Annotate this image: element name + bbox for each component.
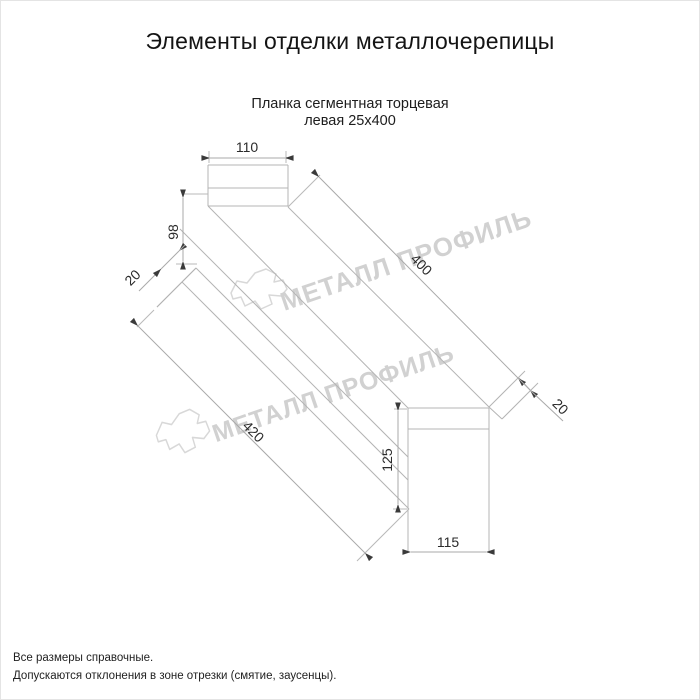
dim-bottom-width-label: 115: [437, 534, 460, 550]
extension-lines: [137, 151, 409, 561]
technical-drawing: МЕТАЛЛ ПРОФИЛЬ МЕТАЛЛ ПРОФИЛЬ: [1, 1, 699, 699]
footer-note-line2: Допускаются отклонения в зоне отрезки (с…: [13, 667, 336, 685]
dim-right-flange-label: 20: [549, 395, 571, 417]
watermark-upper: МЕТАЛЛ ПРОФИЛЬ: [231, 202, 536, 316]
dim-top-width-label: 110: [236, 139, 259, 155]
dimension-labels: 110 98 20 400 420 20 125 115: [121, 139, 572, 550]
dim-left-flange-label: 20: [121, 266, 143, 288]
page: Элементы отделки металлочерепицы Планка …: [0, 0, 700, 700]
brand-logo-watermark: [156, 409, 209, 452]
dim-right-height-label: 125: [379, 448, 395, 472]
watermark-text: МЕТАЛЛ ПРОФИЛЬ: [276, 202, 535, 316]
dim-left-height-label: 98: [165, 224, 181, 240]
footer-notes: Все размеры справочные. Допускаются откл…: [13, 649, 336, 685]
footer-note-line1: Все размеры справочные.: [13, 649, 336, 667]
